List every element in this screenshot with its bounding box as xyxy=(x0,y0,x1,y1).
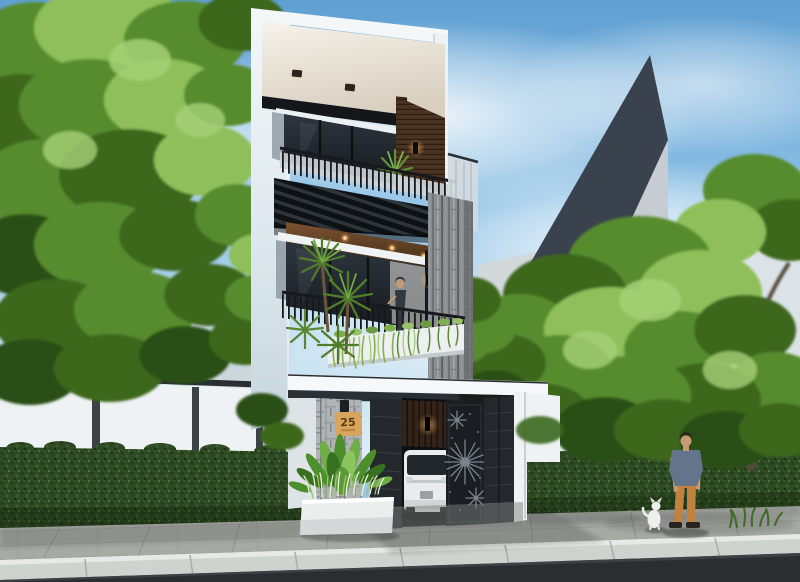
mailbox xyxy=(340,400,349,412)
man-shoes xyxy=(669,522,682,528)
license-plate xyxy=(420,491,433,499)
house-number-plaque: 25 xyxy=(335,412,362,437)
garage-sconce xyxy=(417,414,439,436)
man-head xyxy=(681,436,692,447)
man-shirt xyxy=(669,450,703,486)
architectural-rendering: 25 xyxy=(0,0,800,582)
wall-sconce-top xyxy=(407,139,425,157)
scene-canvas: 25 xyxy=(0,0,800,582)
hedge-left xyxy=(0,441,308,530)
car-rear-window xyxy=(407,455,447,475)
house-number: 25 xyxy=(340,416,356,430)
